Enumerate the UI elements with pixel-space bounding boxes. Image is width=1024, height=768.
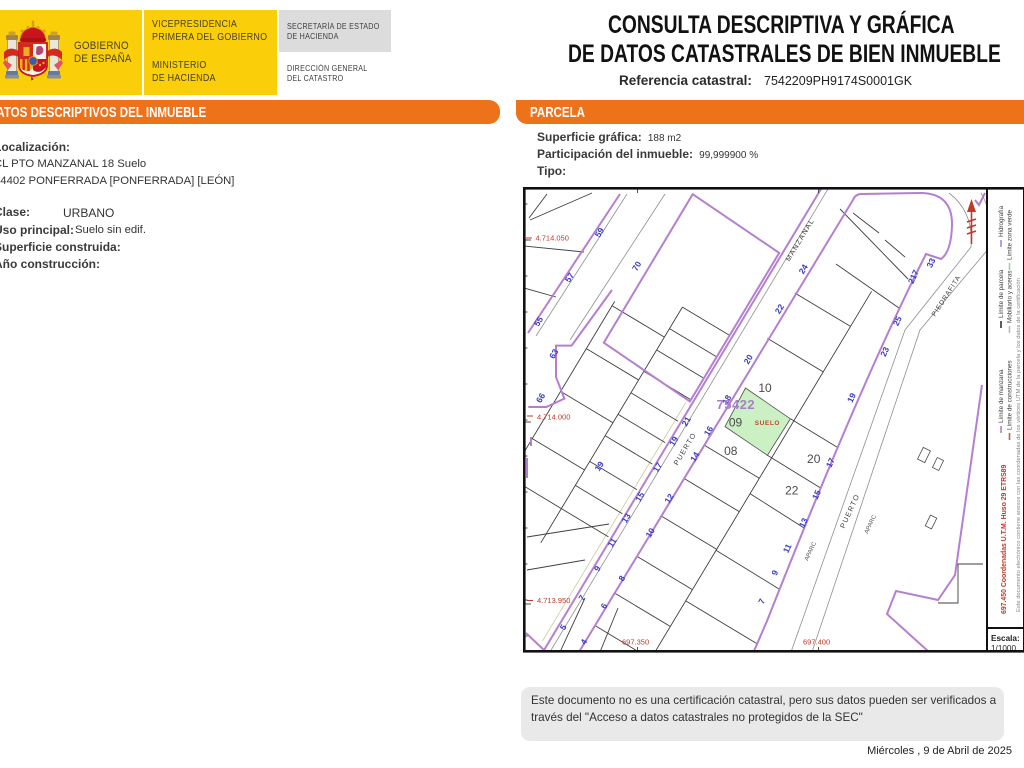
svg-text:19: 19	[592, 459, 606, 472]
svg-text:Escala:: Escala:	[991, 634, 1020, 643]
svg-text:17: 17	[651, 460, 665, 473]
svg-text:Mobiliario y aceras: Mobiliario y aceras	[1007, 271, 1014, 324]
svg-text:Límite de manzana: Límite de manzana	[998, 369, 1005, 423]
svg-text:57: 57	[563, 271, 577, 284]
svg-text:4.714.050: 4.714.050	[536, 234, 569, 243]
svg-text:Hidrografía: Hidrografía	[998, 205, 1005, 237]
svg-text:11: 11	[781, 542, 794, 555]
svg-text:9: 9	[769, 568, 780, 577]
svg-text:15: 15	[633, 490, 647, 503]
svg-text:10: 10	[758, 381, 772, 395]
svg-text:11: 11	[605, 536, 618, 549]
svg-text:Límite zona verde: Límite zona verde	[1007, 209, 1014, 260]
svg-text:22: 22	[785, 484, 799, 498]
svg-text:17: 17	[824, 456, 837, 469]
svg-text:9: 9	[592, 564, 603, 573]
svg-text:4.714.000: 4.714.000	[537, 413, 570, 422]
svg-text:SUELO: SUELO	[755, 420, 780, 427]
svg-text:25: 25	[891, 314, 904, 327]
svg-text:23: 23	[878, 345, 891, 358]
svg-text:08: 08	[724, 444, 738, 458]
svg-text:697.450 Coordenadas U.T.M. Hus: 697.450 Coordenadas U.T.M. Huso 29 ETRS8…	[1001, 464, 1008, 614]
svg-text:Límite de construcciones: Límite de construcciones	[1007, 360, 1014, 430]
svg-text:APARC: APARC	[804, 541, 818, 562]
svg-text:APARC: APARC	[864, 514, 878, 535]
svg-text:697.350: 697.350	[622, 638, 649, 647]
svg-text:7: 7	[576, 593, 587, 602]
svg-text:PIEDRAFITA: PIEDRAFITA	[931, 274, 963, 318]
svg-text:Este documento electrónico con: Este documento electrónico contiene anex…	[1016, 278, 1022, 612]
svg-text:PUERTO: PUERTO	[838, 492, 862, 529]
svg-text:20: 20	[807, 452, 821, 466]
svg-text:697.400: 697.400	[803, 638, 830, 647]
svg-text:75422: 75422	[717, 397, 756, 412]
svg-text:63: 63	[547, 347, 561, 360]
svg-text:09: 09	[729, 416, 743, 430]
svg-text:59: 59	[593, 226, 607, 239]
svg-text:7: 7	[756, 597, 767, 606]
svg-text:70: 70	[630, 259, 644, 272]
svg-text:15: 15	[810, 488, 823, 501]
svg-text:16: 16	[702, 424, 716, 437]
svg-text:19: 19	[667, 434, 681, 447]
svg-text:66: 66	[534, 391, 548, 404]
svg-text:Límite de parcela: Límite de parcela	[998, 269, 1005, 318]
svg-text:4.713.950: 4.713.950	[537, 596, 570, 605]
